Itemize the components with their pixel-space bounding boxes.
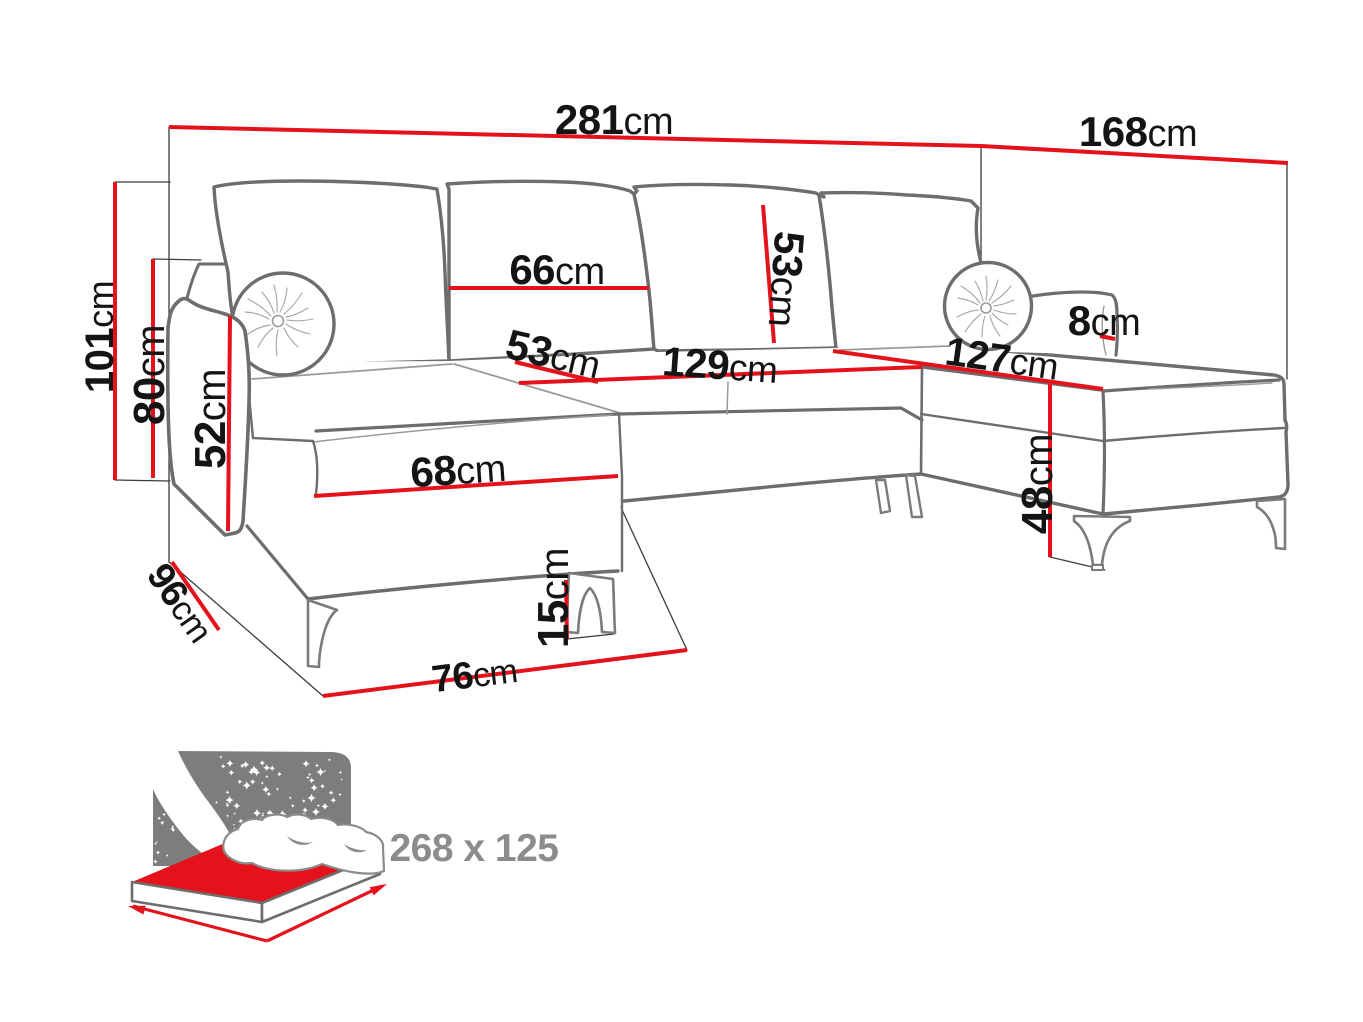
svg-text:52cm: 52cm	[186, 369, 235, 469]
svg-text:48cm: 48cm	[1013, 434, 1062, 534]
svg-text:68cm: 68cm	[409, 443, 507, 497]
svg-text:101cm: 101cm	[78, 281, 122, 393]
svg-text:168cm: 168cm	[1079, 108, 1197, 155]
svg-text:80cm: 80cm	[125, 325, 174, 425]
svg-text:268 x 125: 268 x 125	[389, 827, 558, 870]
svg-text:15cm: 15cm	[529, 548, 578, 648]
svg-text:281cm: 281cm	[555, 96, 673, 143]
svg-text:66cm: 66cm	[509, 246, 604, 293]
svg-text:8cm: 8cm	[1068, 297, 1141, 344]
